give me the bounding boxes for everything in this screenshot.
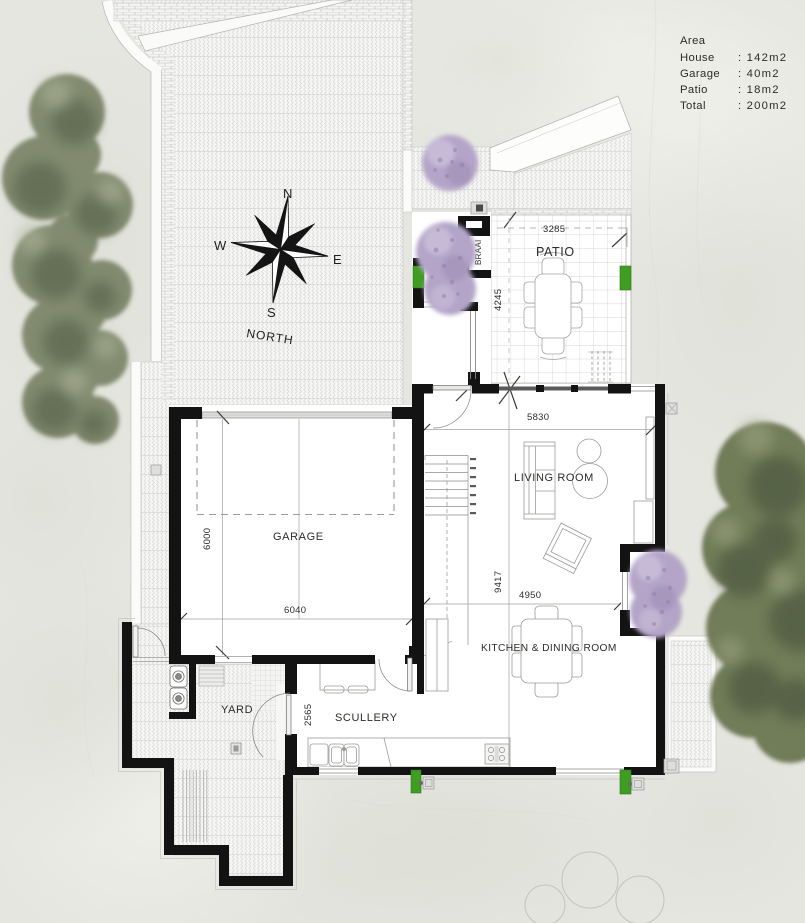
svg-text:House: House xyxy=(680,52,715,64)
svg-text:W: W xyxy=(214,238,227,253)
svg-text:YARD: YARD xyxy=(221,704,253,716)
svg-text:4245: 4245 xyxy=(493,289,504,311)
svg-text:2565: 2565 xyxy=(303,704,314,726)
svg-text:: 18m2: : 18m2 xyxy=(738,84,780,96)
svg-text:4950: 4950 xyxy=(519,590,541,601)
svg-text:S: S xyxy=(267,305,276,320)
svg-text:SCULLERY: SCULLERY xyxy=(335,712,398,724)
svg-text:GARAGE: GARAGE xyxy=(273,531,324,543)
svg-text:Total: Total xyxy=(680,100,706,112)
svg-text:: 142m2: : 142m2 xyxy=(738,52,787,64)
svg-text:KITCHEN & DINING ROOM: KITCHEN & DINING ROOM xyxy=(481,643,617,654)
svg-text:: 40m2: : 40m2 xyxy=(738,68,780,80)
svg-text:Patio: Patio xyxy=(680,84,708,96)
svg-text:6040: 6040 xyxy=(284,605,306,616)
svg-text:LIVING ROOM: LIVING ROOM xyxy=(514,472,594,484)
svg-text:5830: 5830 xyxy=(527,412,549,423)
svg-text:: 200m2: : 200m2 xyxy=(738,100,787,112)
svg-text:E: E xyxy=(333,252,342,267)
svg-text:3285: 3285 xyxy=(543,224,565,235)
svg-text:9417: 9417 xyxy=(493,571,504,593)
svg-text:Area: Area xyxy=(680,35,706,47)
svg-text:6000: 6000 xyxy=(202,528,213,550)
svg-text:Garage: Garage xyxy=(680,68,720,80)
svg-text:N: N xyxy=(283,186,292,201)
svg-text:PATIO: PATIO xyxy=(536,245,575,259)
